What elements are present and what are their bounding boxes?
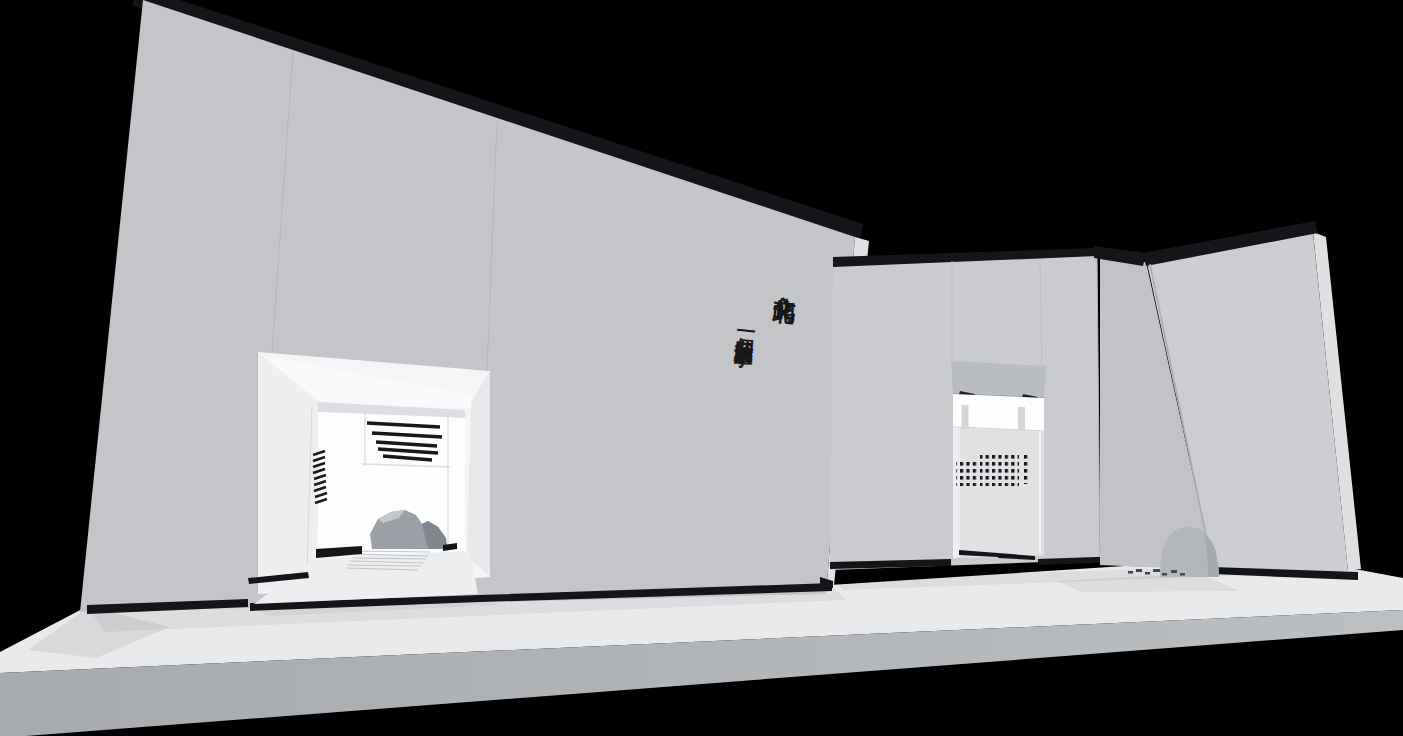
doorway [248,352,490,604]
hanging-tab-right [1018,407,1025,431]
alcove [951,361,1046,560]
pebble [1128,571,1133,574]
alcove-inner-left-strip [953,427,960,558]
pebble [1162,573,1167,576]
perforated-panel-center [980,453,1019,486]
pebble [1171,570,1177,573]
pebble [1145,572,1150,575]
perforated-panel-right [1022,452,1030,484]
exhibition-render-canvas: 文化屿北 一個狀元的故事 [0,0,1403,736]
right-wall [1094,221,1361,580]
scene-svg [0,0,1403,736]
alcove-inner-wall [953,427,1044,558]
hanging-tab-left [962,405,969,429]
perforated-panel-left [956,459,977,486]
pebble [1153,569,1160,572]
calligraphy-subtitle: 一個狀元的故事 [737,320,757,336]
pebble [1180,573,1185,576]
pebble [1136,569,1142,572]
